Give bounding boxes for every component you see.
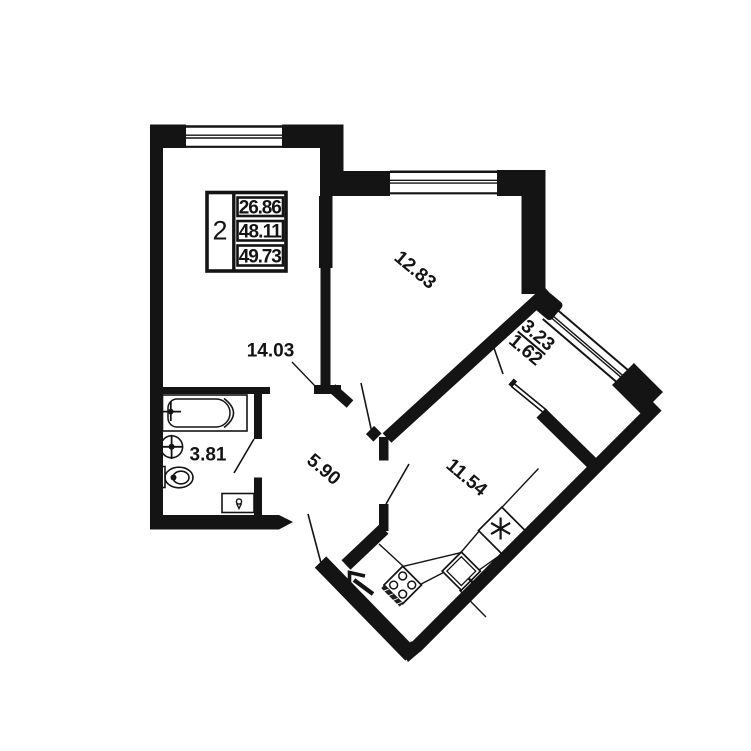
svg-text:2: 2 xyxy=(212,216,227,246)
svg-text:3.81: 3.81 xyxy=(190,445,227,466)
svg-text:49.73: 49.73 xyxy=(239,247,282,268)
svg-text:14.03: 14.03 xyxy=(247,341,295,362)
svg-text:48.11: 48.11 xyxy=(239,222,282,243)
svg-text:26.86: 26.86 xyxy=(239,198,282,219)
